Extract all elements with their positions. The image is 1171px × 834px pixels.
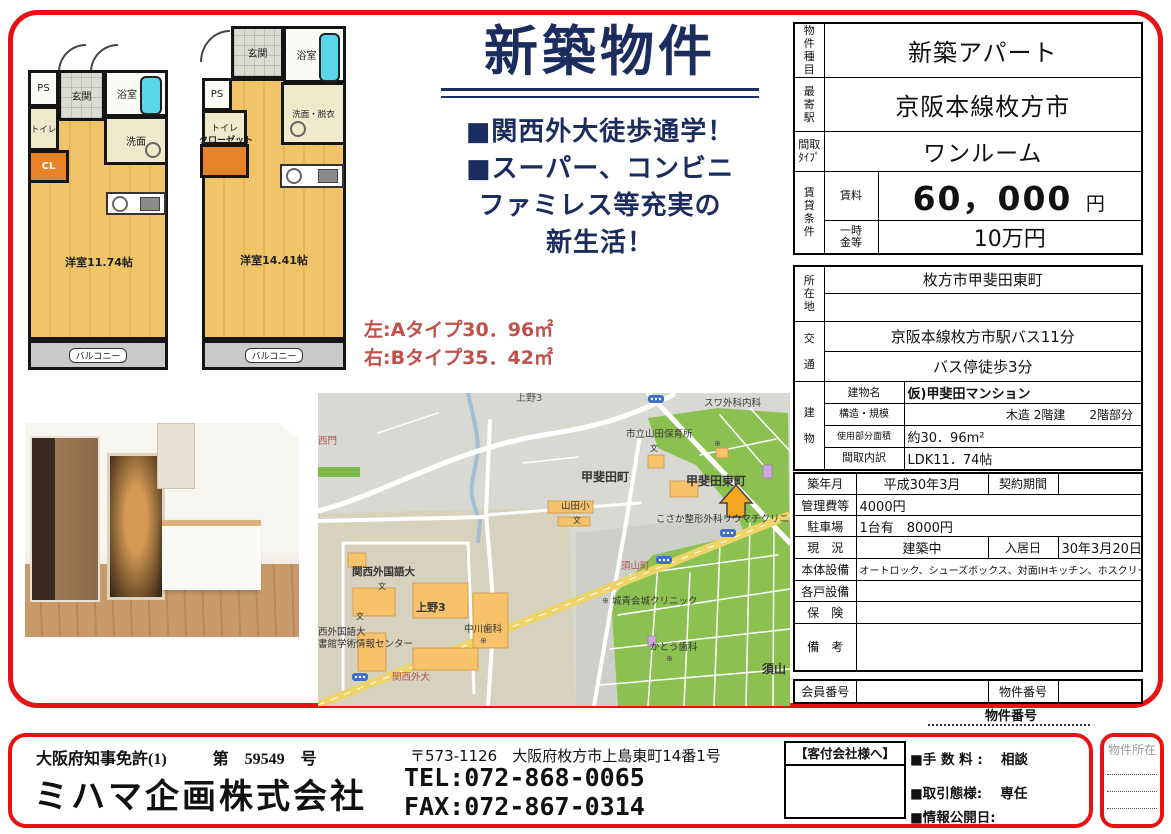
spec-table-middle: 所 在 地 枚方市甲斐田東町 交 通 京阪本線枚方市駅バス11分 バス停徒歩3分… — [793, 265, 1143, 471]
floorplan-b-washroom: 洗面・脱衣 — [281, 82, 346, 145]
floorplan-a: PS 玄関 浴室 トイレ 洗面 CL 洋室11.74帖 バルコニー — [26, 42, 172, 372]
school-icon: 文 — [650, 443, 658, 453]
room-label: PS — [37, 83, 49, 94]
map-label: 市立山田保育所 — [626, 428, 693, 440]
room-label: 洗面・脱衣 — [292, 108, 335, 120]
sales-points: ■関西外大徒歩通学！ ■スーパー、コンビニ ファミレス等充実の 新生活！ — [404, 114, 796, 262]
room-label: 玄関 — [72, 88, 92, 103]
room-label: 浴室 — [297, 47, 317, 62]
floorplan-b-ps: PS — [202, 78, 232, 111]
spec-label-deposit: 一時 金等 — [824, 220, 878, 254]
floorplan-b-room-size: 洋室14.41帖 — [198, 252, 350, 268]
map-label: スワ外科内科 — [704, 397, 762, 409]
property-flyer: PS 玄関 浴室 トイレ 洗面 CL 洋室11.74帖 バルコニー 玄関 浴室 … — [0, 0, 1171, 834]
license-text: 大阪府知事免許(1) — [36, 745, 167, 769]
spec-value-unit-equipment — [856, 581, 1142, 602]
headline-block: 新築物件 ■関西外大徒歩通学！ ■スーパー、コンビニ ファミレス等充実の 新生活… — [404, 22, 796, 262]
spec-label-insurance: 保 険 — [794, 602, 856, 624]
hospital-icon: ⊕ — [714, 439, 721, 448]
room-label: 浴室 — [117, 86, 137, 101]
rent-amount: 60，000 — [913, 179, 1073, 218]
rent-unit: 円 — [1086, 193, 1107, 215]
area-map: 上野3 スワ外科内科 市立山田保育所 文 甲斐田町 甲斐田東町 山田小 文 こさ… — [318, 393, 790, 706]
kitchen-icon — [106, 192, 166, 215]
map-label: 書館学術情報センター — [318, 638, 413, 650]
type-a-size: 左:Aタイプ30．96㎡ — [364, 316, 664, 344]
spec-value-address1: 枚方市甲斐田東町 — [824, 266, 1142, 294]
floorplan-a-washroom: 洗面 — [104, 116, 168, 165]
spec-label-remarks: 備 考 — [794, 624, 856, 671]
spec-table-bottom: 築年月 平成30年3月 契約期間 管理費等 4000円 駐車場 1台有 8000… — [793, 472, 1143, 672]
map-label: 山田小 — [561, 501, 590, 512]
tel-number: TEL:072-868-0065 — [404, 763, 645, 792]
room-label: 洗面 — [126, 133, 146, 148]
map-label: 中川歯科 — [464, 623, 503, 635]
map-label: 須山 — [761, 661, 786, 676]
title-underline — [441, 88, 759, 98]
spec-value-layout: ワンルーム — [824, 131, 1142, 171]
sink-icon — [112, 196, 128, 212]
bathtub-icon — [319, 33, 340, 82]
spec-label-member-no: 会員番号 — [794, 680, 856, 703]
spec-table-top: 物 件 種 目 新築アパート 最 寄 駅 京阪本線枚方市 間取 ﾀｲﾌﾟ ワンル… — [793, 22, 1143, 255]
map-label: こさか整形外科リウマチクリニック — [656, 513, 790, 525]
spec-label-structure: 構造・規模 — [824, 404, 904, 426]
page-title: 新築物件 — [404, 22, 796, 82]
spec-label-status: 現 況 — [794, 537, 856, 559]
spec-value-property-type: 新築アパート — [824, 23, 1142, 77]
property-no-caption: 物件番号 — [985, 705, 1037, 724]
hospital-icon: ⊕ — [666, 654, 673, 663]
spec-label-property-no: 物件番号 — [988, 680, 1058, 703]
door-arc-icon — [58, 44, 86, 72]
map-label: 上野3 — [416, 600, 446, 614]
spec-tables: 物 件 種 目 新築アパート 最 寄 駅 京阪本線枚方市 間取 ﾀｲﾌﾟ ワンル… — [793, 22, 1143, 704]
spec-value-built: 平成30年3月 — [856, 473, 988, 495]
spec-value-parking: 1台有 8000円 — [856, 516, 1142, 537]
school-icon: 文 — [573, 515, 581, 525]
spec-value-member-no — [856, 680, 988, 703]
sink-icon — [290, 121, 306, 137]
floorplan-a-closet: CL — [28, 150, 69, 183]
floorplan-a-ps: PS — [28, 70, 59, 107]
spec-label-property-type: 物 件 種 目 — [794, 23, 824, 77]
company-phone: TEL:072-868-0065 FAX:072-867-0314 — [404, 763, 645, 821]
spec-value-property-no — [1058, 680, 1142, 703]
spec-value-status: 建築中 — [856, 537, 988, 559]
map-label: 関西外大 — [392, 671, 431, 683]
spec-value-insurance — [856, 602, 1142, 624]
property-no-fill-line — [928, 724, 1090, 726]
floorplan-b-closet: クローゼット — [200, 144, 249, 178]
room-label: 玄関 — [248, 45, 268, 60]
school-icon: 文 — [378, 581, 386, 591]
spec-label-management: 管理費等 — [794, 495, 856, 516]
spec-value-movein: 30年3月20日 — [1058, 537, 1142, 559]
fax-number: FAX:072-867-0314 — [404, 792, 645, 821]
property-location-label: 物件所在 — [1104, 741, 1160, 758]
interior-photo — [16, 414, 308, 646]
agent-note-box: 【客付会社様へ】 — [784, 741, 906, 819]
floorplan-a-balcony: バルコニー — [28, 340, 168, 370]
sales-point-2b: ファミレス等充実の — [404, 188, 796, 225]
hospital-icon: ⊕ — [602, 596, 609, 605]
company-name: ミハマ企画株式会社 — [34, 769, 367, 818]
floorplan-a-room-size: 洋室11.74帖 — [26, 254, 172, 270]
map-label: 関西外国語大 — [352, 565, 415, 578]
floorplan-b-entrance: 玄関 — [231, 26, 284, 79]
sales-point-2: ■スーパー、コンビニ — [404, 151, 796, 188]
spec-label-equipment: 本体設備 — [794, 559, 856, 581]
school-icon: 文 — [356, 611, 364, 621]
spec-value-rent: 60，000 円 — [878, 171, 1142, 220]
spec-value-structure: 木造 2階建 2階部分 — [904, 404, 1142, 426]
spec-value-access1: 京阪本線枚方市駅バス11分 — [824, 322, 1142, 352]
door-arc-icon — [200, 30, 230, 62]
spec-value-deposit: 10万円 — [878, 220, 1142, 254]
photo-kitchen-counter — [162, 520, 261, 590]
spec-table-numbers: 会員番号 物件番号 — [793, 679, 1143, 704]
spec-value-equipment: オートロック、シューズボックス、対面IHキッチン、ホスクリーン — [856, 559, 1142, 581]
property-location-box: 物件所在 — [1100, 733, 1164, 828]
spec-label-access: 交 通 — [794, 322, 824, 382]
spec-value-management: 4000円 — [856, 495, 1142, 516]
room-label: バルコニー — [69, 348, 128, 363]
license-line: 大阪府知事免許(1) 第 59549 号 — [36, 745, 317, 769]
dealing-line: ■取引態様: 専任 — [910, 779, 1028, 809]
map-label: 甲斐田東町 — [686, 473, 746, 488]
spec-value-station: 京阪本線枚方市 — [824, 77, 1142, 131]
floorplan-a-toilet: トイレ — [28, 106, 59, 151]
unit-type-sizes: 左:Aタイプ30．96㎡ 右:Bタイプ35．42㎡ — [364, 316, 664, 372]
room-label: バルコニー — [245, 348, 304, 363]
photo-closet — [30, 436, 100, 603]
map-label: 上野3 — [516, 393, 542, 404]
map-label: 城青会城クリニック — [612, 595, 698, 607]
floorplan-a-entrance: 玄関 — [58, 70, 105, 121]
type-b-size: 右:Bタイプ35．42㎡ — [364, 344, 664, 372]
spec-label-contract: 契約期間 — [988, 473, 1058, 495]
company-footer: 大阪府知事免許(1) 第 59549 号 ミハマ企画株式会社 〒573-1126… — [8, 733, 1093, 828]
spec-value-area: 約30．96m² — [904, 426, 1142, 448]
disclosure-line: ■情報公開日: — [910, 809, 1028, 827]
floorplan-b-bath: 浴室 — [283, 26, 346, 83]
spec-value-building-name: 仮)甲斐田マンション — [904, 382, 1142, 404]
license-number: 第 59549 号 — [213, 745, 317, 769]
spec-label-layout-detail: 間取内訳 — [824, 448, 904, 470]
spec-label-building-name: 建物名 — [824, 382, 904, 404]
spec-value-layout-detail: LDK11．74帖 — [904, 448, 1142, 470]
map-label: 甲斐田町 — [581, 469, 629, 484]
interior-photo-image — [25, 423, 299, 637]
spec-label-rent: 賃料 — [824, 171, 878, 220]
terms-block: ■手 数 料 : 相談 ■取引態様: 専任 ■情報公開日: — [910, 745, 1028, 827]
spec-label-rent-section: 賃 貸 条 件 — [794, 171, 824, 254]
spec-value-remarks — [856, 624, 1142, 671]
sink-icon — [286, 168, 302, 184]
location-fill-line — [1107, 791, 1157, 792]
spec-label-building: 建 物 — [794, 382, 824, 470]
location-fill-line — [1107, 808, 1157, 809]
sales-point-2c: 新生活！ — [404, 225, 796, 262]
stove-icon — [140, 197, 160, 211]
floorplan-a-bath: 浴室 — [104, 70, 168, 117]
spec-label-movein: 入居日 — [988, 537, 1058, 559]
room-label: CL — [42, 161, 56, 172]
spec-value-access2: バス停徒歩3分 — [824, 352, 1142, 382]
map-canvas: 上野3 スワ外科内科 市立山田保育所 文 甲斐田町 甲斐田東町 山田小 文 こさ… — [318, 393, 790, 706]
stove-icon — [318, 169, 338, 183]
map-label: 西外国語大 — [318, 626, 366, 638]
floorplan-b: 玄関 浴室 PS トイレ クローゼット 洗面・脱衣 洋室14.41帖 バルコニー — [198, 22, 350, 374]
sales-point-1: ■関西外大徒歩通学！ — [404, 114, 796, 151]
door-arc-icon — [90, 44, 118, 72]
map-label: 西門 — [318, 436, 337, 447]
spec-label-built: 築年月 — [794, 473, 856, 495]
kitchen-icon — [280, 164, 344, 188]
spec-label-station: 最 寄 駅 — [794, 77, 824, 131]
floorplan-b-balcony: バルコニー — [202, 340, 346, 370]
map-label: 須山町 — [621, 561, 650, 572]
spec-value-contract — [1058, 473, 1142, 495]
bathtub-icon — [140, 76, 162, 115]
fee-line: ■手 数 料 : 相談 — [910, 745, 1028, 775]
spec-label-address: 所 在 地 — [794, 266, 824, 322]
spec-label-unit-equipment: 各戸設備 — [794, 581, 856, 602]
room-label: クローゼット — [199, 133, 253, 146]
hospital-icon: ⊕ — [480, 636, 487, 645]
map-green-strip — [318, 467, 360, 477]
room-label: トイレ — [31, 123, 57, 135]
spec-value-address2 — [824, 294, 1142, 322]
spec-label-layout: 間取 ﾀｲﾌﾟ — [794, 131, 824, 171]
photo-cabinet — [157, 423, 195, 489]
spec-label-parking: 駐車場 — [794, 516, 856, 537]
room-label: PS — [211, 89, 223, 100]
map-label: かとう歯科 — [650, 641, 698, 653]
agent-note-title: 【客付会社様へ】 — [786, 743, 904, 766]
location-fill-line — [1107, 774, 1157, 775]
spec-label-area: 使用部分面積 — [824, 426, 904, 448]
sink-icon — [145, 142, 161, 158]
